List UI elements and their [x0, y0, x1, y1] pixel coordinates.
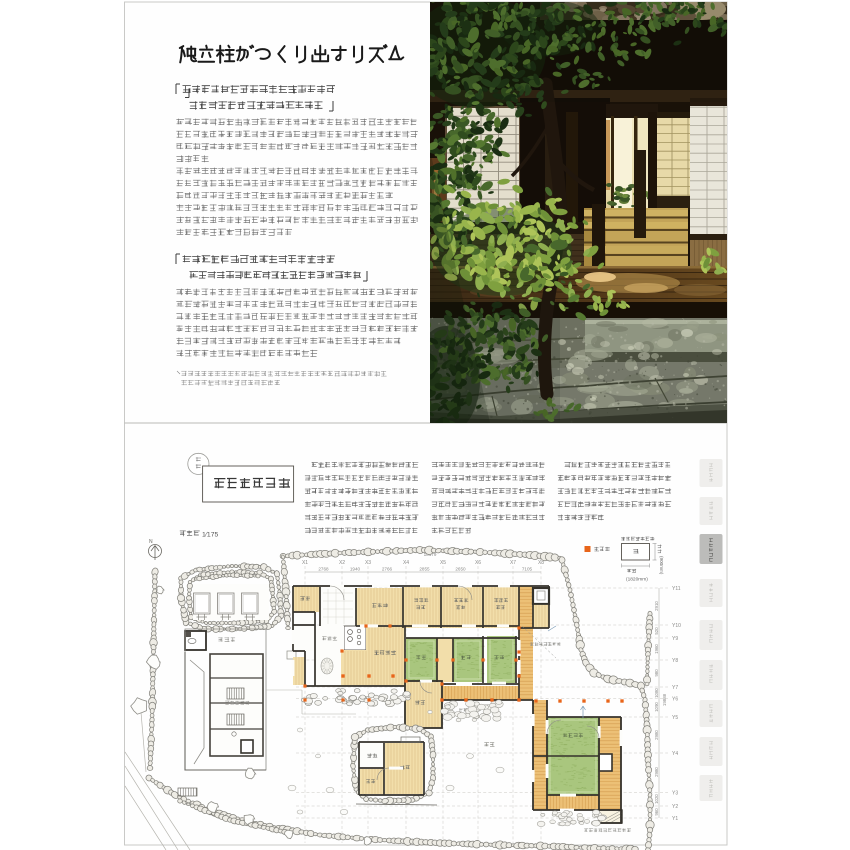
svg-text:(1820mm): (1820mm)	[626, 577, 648, 583]
svg-text:Y7: Y7	[672, 685, 678, 691]
svg-text:2980: 2980	[654, 730, 659, 740]
svg-text:2768: 2768	[318, 567, 329, 572]
svg-text:1∕175: 1∕175	[202, 532, 218, 539]
svg-text:1090: 1090	[654, 702, 659, 712]
svg-text:1080: 1080	[654, 688, 659, 698]
svg-text:Y11: Y11	[672, 586, 681, 592]
svg-text:Y3: Y3	[672, 790, 678, 796]
svg-text:Y4: Y4	[672, 751, 678, 757]
svg-text:2980: 2980	[654, 767, 659, 777]
svg-text:2910: 2910	[654, 601, 659, 611]
svg-text:1020: 1020	[654, 794, 659, 804]
svg-text:X5: X5	[440, 560, 446, 566]
svg-text:(900mm): (900mm)	[659, 556, 664, 575]
svg-text:X4: X4	[403, 560, 409, 566]
svg-text:19888: 19888	[662, 693, 667, 706]
svg-text:X2: X2	[339, 560, 345, 566]
svg-text:Y9: Y9	[672, 636, 678, 642]
svg-text:1960: 1960	[654, 644, 659, 654]
svg-text:X6: X6	[475, 560, 481, 566]
svg-text:X7: X7	[510, 560, 516, 566]
svg-text:520: 520	[654, 627, 659, 635]
svg-text:X1: X1	[302, 560, 308, 566]
svg-text:X3: X3	[365, 560, 371, 566]
svg-text:1940: 1940	[350, 567, 361, 572]
svg-text:2766: 2766	[382, 567, 393, 572]
svg-text:2650: 2650	[455, 567, 466, 572]
svg-text:Y1: Y1	[672, 816, 678, 822]
svg-text:980: 980	[654, 669, 659, 677]
svg-text:Y2: Y2	[672, 804, 678, 810]
svg-text:2855: 2855	[419, 567, 430, 572]
svg-text:960: 960	[654, 808, 659, 816]
svg-text:X8: X8	[538, 560, 544, 566]
svg-text:7105: 7105	[522, 567, 533, 572]
svg-text:Y8: Y8	[672, 658, 678, 664]
svg-text:N: N	[149, 539, 153, 545]
svg-text:Y6: Y6	[672, 696, 678, 702]
svg-text:Y5: Y5	[672, 715, 678, 721]
svg-text:Y10: Y10	[672, 623, 681, 629]
